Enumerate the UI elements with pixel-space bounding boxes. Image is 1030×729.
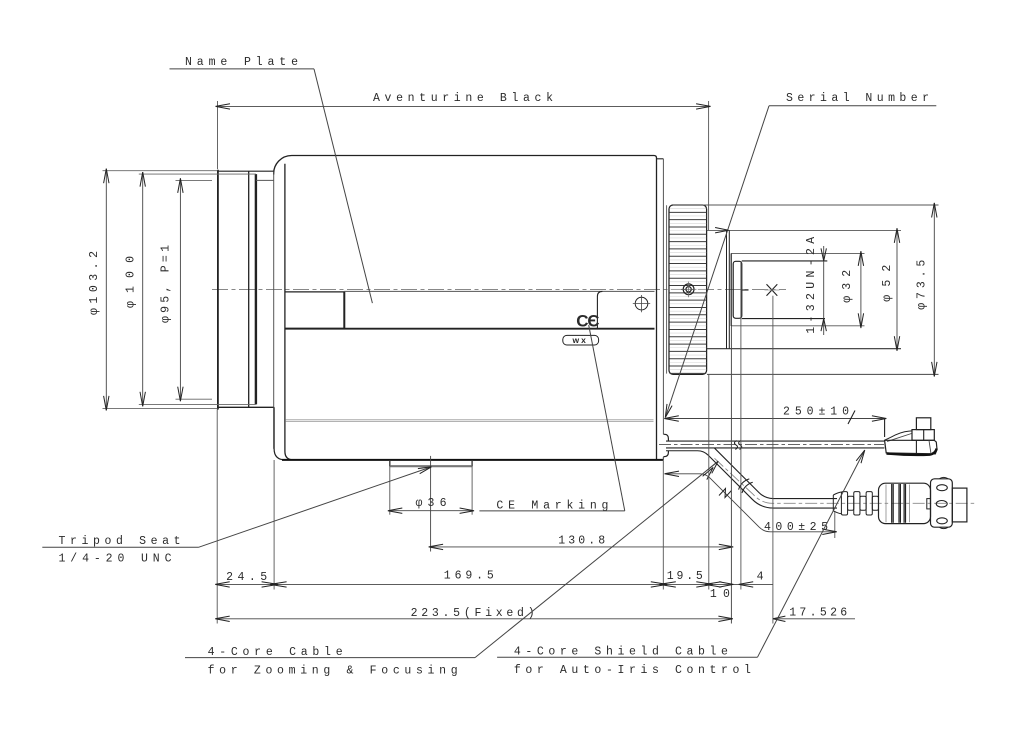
svg-text:CЄ: CЄ <box>576 312 599 331</box>
svg-text:Tripod Seat: Tripod Seat <box>59 535 181 548</box>
svg-text:φ32: φ32 <box>841 270 854 303</box>
svg-text:φ36: φ36 <box>416 497 447 510</box>
svg-text:for Auto-Iris Control: for Auto-Iris Control <box>514 664 751 677</box>
svg-text:4: 4 <box>757 571 764 584</box>
svg-text:1-32UN-2A: 1-32UN-2A <box>805 237 818 334</box>
svg-text:φ52: φ52 <box>881 265 894 302</box>
svg-text:wx: wx <box>572 335 588 345</box>
